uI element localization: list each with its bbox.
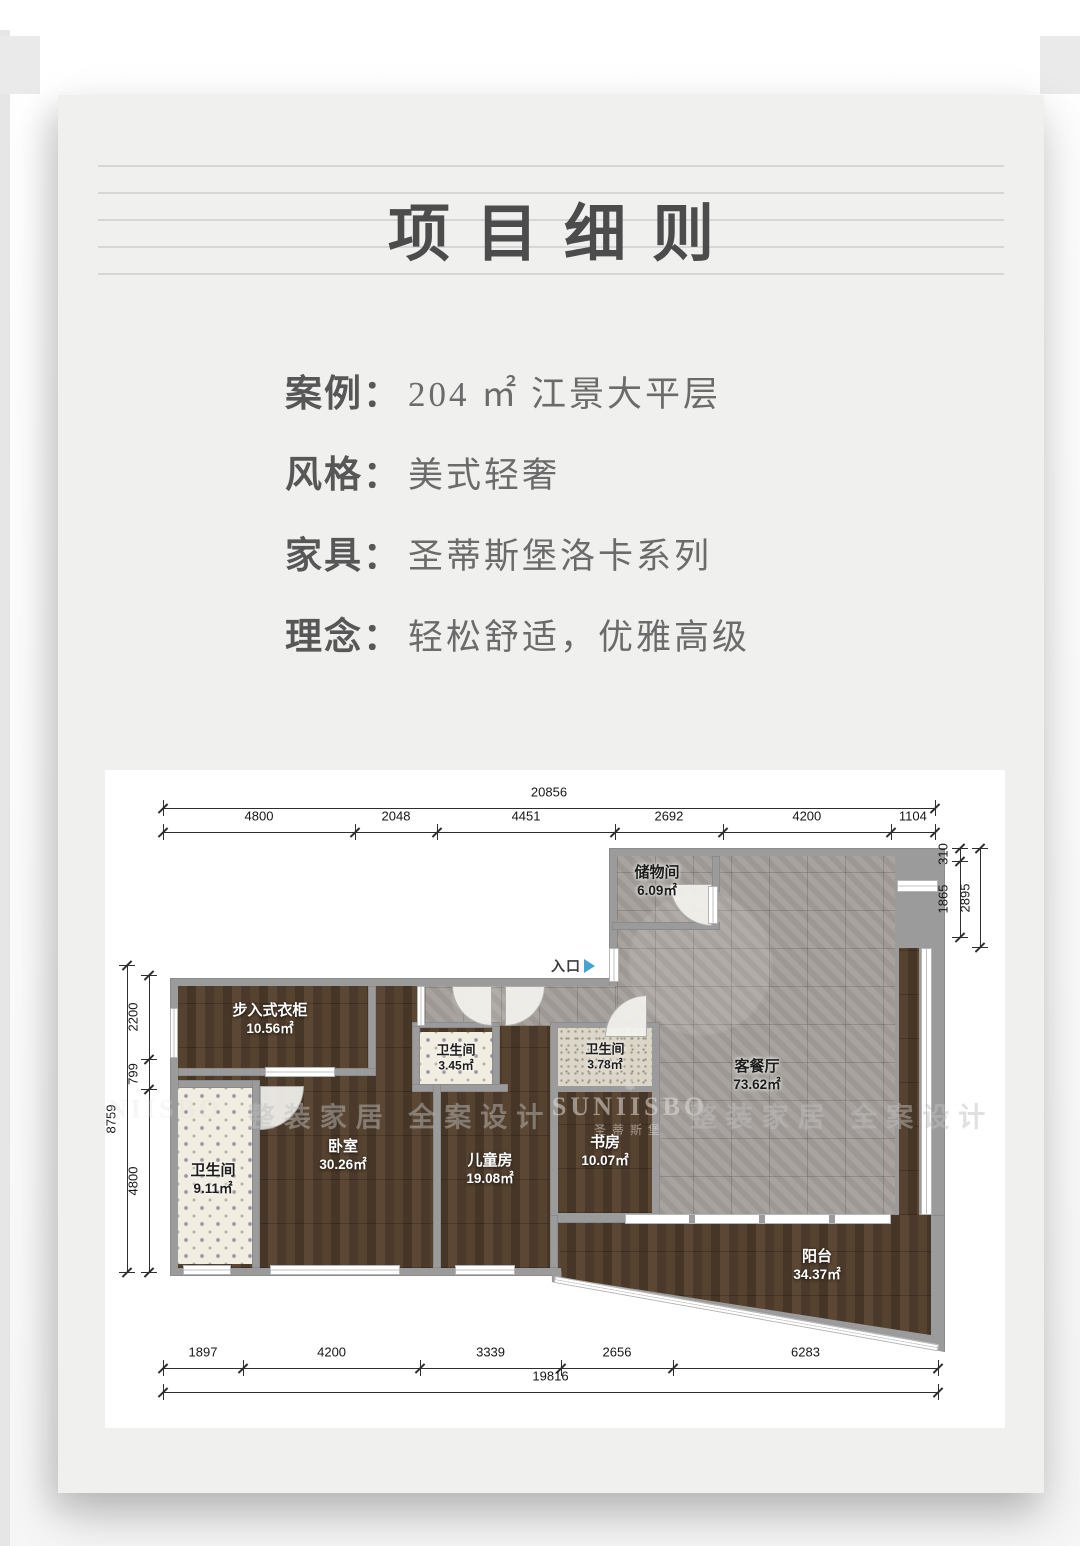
entrance-label: 入口 [551, 956, 581, 976]
info-row-concept: 理念： 轻松舒适，优雅高级 [285, 606, 750, 660]
info-label: 家具： [285, 525, 402, 579]
room-name: 客餐厅 [733, 1058, 780, 1077]
dim-value: 20856 [531, 785, 567, 800]
watermark-brand: SUNIISBO [105, 1096, 223, 1125]
dim-value: 1104 [899, 809, 927, 824]
background-corner-left [0, 36, 40, 94]
info-value: 圣蒂斯堡洛卡系列 [408, 528, 712, 579]
dim-value: 799 [126, 1063, 141, 1085]
entrance-marker: 入口 [551, 956, 595, 976]
entrance-arrow-icon [584, 959, 595, 973]
project-info-list: 案例： 204 ㎡ 江景大平层 风格： 美式轻奢 家具： 圣蒂斯堡洛卡系列 理念… [285, 363, 750, 660]
watermark-brand-cn: 圣蒂斯堡 [552, 1121, 708, 1138]
dim-value: 4800 [126, 1166, 141, 1195]
dim-value: 2692 [654, 809, 683, 824]
dim-value: 3339 [476, 1345, 505, 1360]
info-label: 风格： [285, 444, 402, 498]
info-value: 美式轻奢 [408, 447, 560, 498]
room-label-kids: 儿童房 19.08㎡ [466, 1152, 513, 1188]
dim-value: 1897 [189, 1345, 218, 1360]
dim-value: 19816 [532, 1369, 568, 1384]
room-area: 9.11㎡ [190, 1181, 235, 1198]
room-name: 储物间 [634, 864, 679, 883]
room-label-bath-master: 卫生间 9.11㎡ [190, 1162, 235, 1198]
room-label-study: 书房 10.07㎡ [581, 1134, 628, 1170]
room-area: 73.62㎡ [733, 1077, 780, 1094]
watermark-logo: ❁ SUNIISBO 圣蒂斯堡 [552, 1078, 708, 1138]
room-area: 10.07㎡ [581, 1153, 628, 1170]
info-row-style: 风格： 美式轻奢 [285, 444, 750, 498]
info-value: 轻松舒适，优雅高级 [408, 609, 750, 660]
dim-value: 4200 [792, 809, 821, 824]
room-area: 19.08㎡ [466, 1171, 513, 1188]
dim-value: 4800 [245, 809, 274, 824]
room-area: 10.56㎡ [232, 1021, 307, 1038]
rule-line [98, 273, 1004, 275]
room-name: 儿童房 [466, 1152, 513, 1171]
dim-value: 310 [936, 843, 951, 865]
watermark-brand: SUNIISBO [552, 1093, 708, 1122]
dim-value: 2656 [603, 1345, 632, 1360]
project-card: 项目细则 案例： 204 ㎡ 江景大平层 风格： 美式轻奢 家具： 圣蒂斯堡洛卡… [58, 95, 1044, 1493]
page-title: 项目细则 [58, 183, 1044, 273]
room-label-balcony: 阳台 34.37㎡ [793, 1248, 840, 1284]
room-label-bath-small: 卫生间 3.78㎡ [585, 1041, 624, 1072]
info-row-furniture: 家具： 圣蒂斯堡洛卡系列 [285, 525, 750, 579]
room-name: 步入式衣柜 [232, 1002, 307, 1021]
watermark-slogan-left: 整装家居 全案设计 [248, 1096, 553, 1135]
watermark-slogan-right: 整装家居 全案设计 [690, 1096, 995, 1135]
dim-value: 6283 [791, 1345, 820, 1360]
page-edge-strip [0, 30, 10, 1546]
room-name: 卫生间 [190, 1162, 235, 1181]
info-value: 204 ㎡ 江景大平层 [408, 366, 721, 417]
dim-value: 4451 [512, 809, 541, 824]
rule-line [98, 165, 1004, 167]
floorplan: 入口 SUNIISBO 整装家居 全案设计 ❁ SUNIISBO 圣蒂斯堡 整装… [105, 770, 1005, 1428]
room-name: 阳台 [793, 1248, 840, 1267]
info-label: 案例： [285, 363, 402, 417]
dim-value: 4200 [317, 1345, 346, 1360]
room-label-bedroom: 卧室 30.26㎡ [319, 1138, 366, 1174]
room-area: 30.26㎡ [319, 1157, 366, 1174]
flower-icon: ❁ [552, 1078, 708, 1093]
room-area: 3.78㎡ [585, 1058, 624, 1073]
room-label-storage: 储物间 6.09㎡ [634, 864, 679, 900]
room-name: 卫生间 [436, 1042, 475, 1058]
room-label-living: 客餐厅 73.62㎡ [733, 1058, 780, 1094]
dim-value: 1865 [936, 884, 951, 913]
background-corner-right [1040, 36, 1080, 94]
room-label-closet: 步入式衣柜 10.56㎡ [232, 1002, 307, 1038]
watermark-logo-partial: SUNIISBO [105, 1096, 223, 1125]
room-area: 6.09㎡ [634, 883, 679, 900]
room-area: 34.37㎡ [793, 1267, 840, 1284]
room-label-bath-mid: 卫生间 3.45㎡ [436, 1042, 475, 1073]
info-label: 理念： [285, 606, 402, 660]
room-name: 卧室 [319, 1138, 366, 1157]
room-name: 卫生间 [585, 1041, 624, 1057]
info-row-case: 案例： 204 ㎡ 江景大平层 [285, 363, 750, 417]
room-area: 3.45㎡ [436, 1059, 475, 1074]
floorplan-panel: 入口 SUNIISBO 整装家居 全案设计 ❁ SUNIISBO 圣蒂斯堡 整装… [105, 770, 1005, 1428]
room-name: 书房 [581, 1134, 628, 1153]
dim-value: 2895 [958, 883, 973, 912]
dim-value: 2200 [126, 1002, 141, 1031]
dim-value: 2048 [382, 809, 411, 824]
